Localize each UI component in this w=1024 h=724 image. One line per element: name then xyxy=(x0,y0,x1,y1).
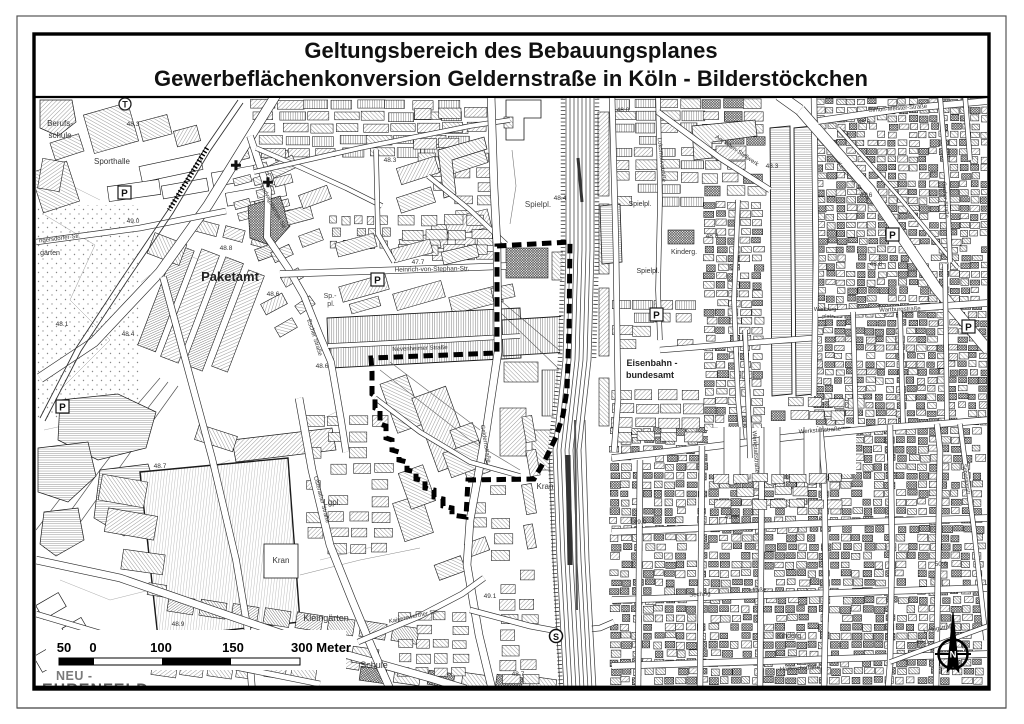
svg-text:P: P xyxy=(59,403,66,414)
svg-text:47.6: 47.6 xyxy=(860,192,873,199)
svg-text:50.0: 50.0 xyxy=(935,561,948,568)
svg-text:✚: ✚ xyxy=(231,158,242,173)
svg-text:Kinderg.: Kinderg. xyxy=(777,633,803,640)
svg-text:150: 150 xyxy=(222,640,244,655)
svg-text:49.0: 49.0 xyxy=(916,639,929,646)
svg-text:Spielpl.: Spielpl. xyxy=(629,201,652,208)
svg-text:48.8: 48.8 xyxy=(870,261,883,268)
svg-text:Kran: Kran xyxy=(273,556,290,565)
svg-text:T: T xyxy=(122,100,128,110)
svg-text:Eisenbahn -: Eisenbahn - xyxy=(626,358,677,368)
svg-text:48.3: 48.3 xyxy=(384,157,397,164)
svg-text:Kran: Kran xyxy=(537,482,554,491)
svg-text:Kleingärten: Kleingärten xyxy=(303,613,349,623)
svg-text:N: N xyxy=(950,650,957,661)
svg-text:0: 0 xyxy=(89,640,96,655)
svg-text:pl.: pl. xyxy=(327,301,334,308)
svg-text:Spielpl.: Spielpl. xyxy=(637,268,660,275)
svg-text:100: 100 xyxy=(150,640,172,655)
svg-text:48.4: 48.4 xyxy=(122,331,135,338)
svg-text:P: P xyxy=(121,189,128,200)
svg-text:47.7: 47.7 xyxy=(412,259,425,266)
svg-text:Sp.-: Sp.- xyxy=(324,293,338,300)
svg-text:300 Meter: 300 Meter xyxy=(291,640,351,655)
svg-text:Paketamt: Paketamt xyxy=(201,269,259,284)
svg-text:Geltungsbereich des Bebauungsp: Geltungsbereich des Bebauungsplanes xyxy=(304,38,717,63)
svg-text:49.1: 49.1 xyxy=(484,593,497,600)
svg-text:48.7: 48.7 xyxy=(512,671,525,678)
svg-text:48.8: 48.8 xyxy=(220,245,233,252)
svg-text:50: 50 xyxy=(57,640,71,655)
svg-text:48.8: 48.8 xyxy=(706,233,719,240)
svg-text:P: P xyxy=(965,323,972,334)
svg-text:bundesamt: bundesamt xyxy=(626,370,674,380)
svg-text:Kinderg.: Kinderg. xyxy=(671,249,697,256)
svg-text:48.3: 48.3 xyxy=(127,121,140,128)
svg-text:48.7: 48.7 xyxy=(154,463,167,470)
svg-text:49.0: 49.0 xyxy=(634,519,647,526)
svg-text:48.9: 48.9 xyxy=(172,621,185,628)
svg-text:Gewerbeflächenkonversion Gelde: Gewerbeflächenkonversion Geldernstraße i… xyxy=(154,66,868,91)
svg-text:48.6: 48.6 xyxy=(316,363,329,370)
svg-text:Wartburg-: Wartburg- xyxy=(814,307,838,313)
svg-text:Lgpl.: Lgpl. xyxy=(323,498,340,507)
svg-text:S: S xyxy=(553,632,559,642)
svg-text:Schule: Schule xyxy=(360,660,388,670)
svg-text:P: P xyxy=(374,276,381,287)
svg-text:gärten: gärten xyxy=(40,250,60,257)
svg-text:P: P xyxy=(889,231,896,242)
svg-text:Berufs-: Berufs- xyxy=(47,119,73,128)
svg-text:48.1: 48.1 xyxy=(56,321,69,328)
svg-text:49.0: 49.0 xyxy=(127,218,140,225)
svg-text:48.0: 48.0 xyxy=(617,107,630,114)
svg-text:48.6: 48.6 xyxy=(858,119,871,126)
svg-text:P: P xyxy=(653,311,660,322)
svg-text:platz: platz xyxy=(822,314,834,320)
svg-text:Spielpl.: Spielpl. xyxy=(525,200,551,209)
svg-text:48.3: 48.3 xyxy=(766,163,779,170)
svg-text:48.4: 48.4 xyxy=(554,195,567,202)
svg-text:48.6: 48.6 xyxy=(267,291,280,298)
svg-text:49.0: 49.0 xyxy=(725,514,738,521)
svg-text:Sporthalle: Sporthalle xyxy=(94,157,131,166)
svg-text:schule: schule xyxy=(48,131,72,140)
svg-text:Heinrich-von-Stephan-Str.: Heinrich-von-Stephan-Str. xyxy=(395,265,470,273)
svg-text:straße: straße xyxy=(749,587,767,594)
